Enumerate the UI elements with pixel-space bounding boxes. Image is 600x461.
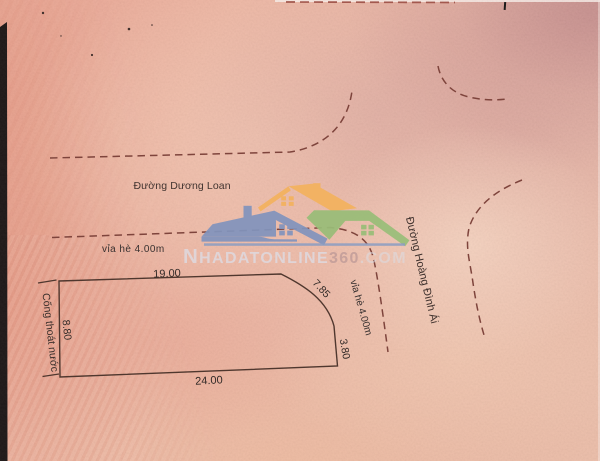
svg-text:vỉa hè 4.00m: vỉa hè 4.00m bbox=[102, 243, 165, 255]
svg-text:24.00: 24.00 bbox=[195, 374, 223, 387]
svg-text:19.00: 19.00 bbox=[153, 267, 181, 280]
svg-text:Đường Dương Loan: Đường Dương Loan bbox=[134, 180, 231, 192]
svg-text:8.80: 8.80 bbox=[59, 319, 73, 341]
